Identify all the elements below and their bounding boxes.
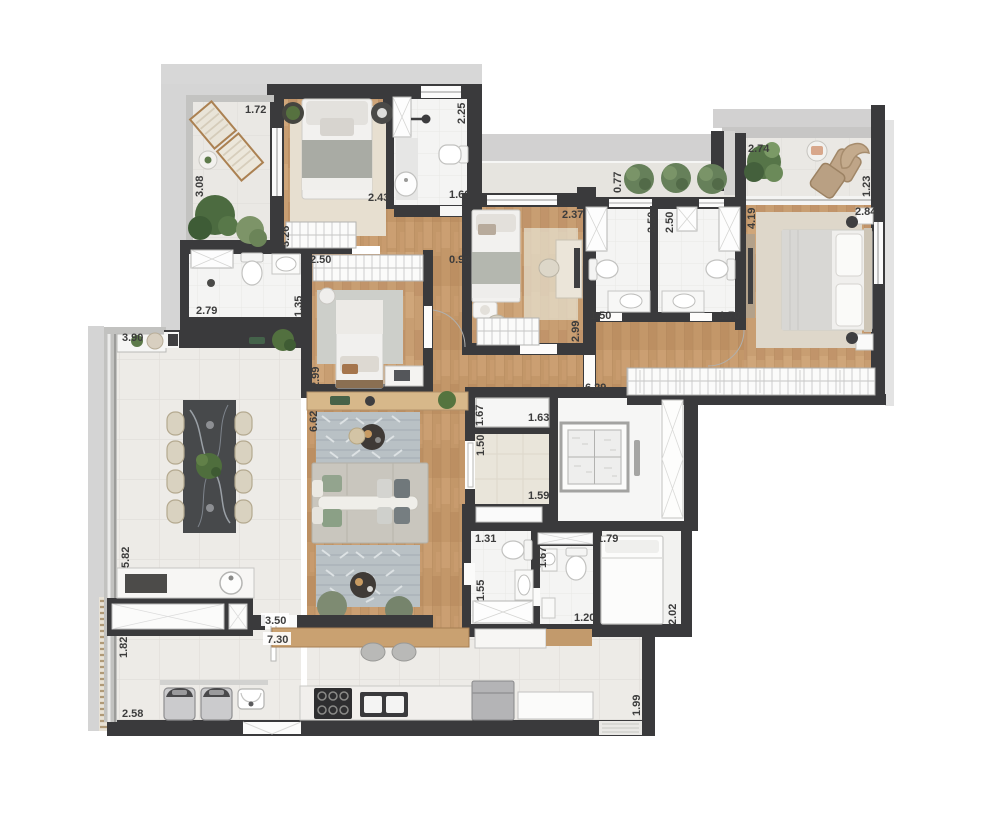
svg-text:2.43: 2.43 — [368, 192, 389, 204]
svg-text:1.55: 1.55 — [475, 580, 487, 601]
svg-text:2.58: 2.58 — [122, 708, 143, 720]
svg-text:1.72: 1.72 — [245, 104, 266, 116]
svg-text:0.90: 0.90 — [449, 254, 470, 266]
svg-text:3.50: 3.50 — [265, 615, 286, 627]
svg-text:1.50: 1.50 — [590, 310, 611, 322]
svg-text:3.08: 3.08 — [194, 176, 206, 197]
svg-text:1.20: 1.20 — [574, 612, 595, 624]
svg-text:1.60: 1.60 — [449, 189, 470, 201]
svg-text:1.35: 1.35 — [293, 296, 305, 317]
svg-text:2.02: 2.02 — [667, 604, 679, 625]
svg-text:2.25: 2.25 — [456, 103, 468, 124]
svg-text:6.62: 6.62 — [308, 411, 320, 432]
svg-text:2.50: 2.50 — [664, 212, 676, 233]
svg-text:2.74: 2.74 — [748, 143, 770, 155]
svg-text:2.99: 2.99 — [310, 367, 322, 388]
svg-text:1.82: 1.82 — [118, 637, 130, 658]
svg-text:1.59: 1.59 — [528, 490, 549, 502]
svg-text:1.67: 1.67 — [537, 547, 549, 568]
svg-text:1.63: 1.63 — [528, 412, 549, 424]
svg-text:1.50: 1.50 — [475, 435, 487, 456]
svg-text:0.77: 0.77 — [612, 172, 624, 193]
svg-text:1.23: 1.23 — [861, 176, 873, 197]
svg-text:1.67: 1.67 — [474, 405, 486, 426]
svg-text:1.99: 1.99 — [631, 695, 643, 716]
svg-text:3.90: 3.90 — [122, 332, 143, 344]
svg-text:6.29: 6.29 — [585, 382, 606, 394]
svg-text:5.82: 5.82 — [120, 547, 132, 568]
svg-text:2.37: 2.37 — [562, 209, 583, 221]
svg-text:2.84: 2.84 — [855, 206, 877, 218]
svg-text:1.70: 1.70 — [719, 310, 740, 322]
svg-text:2.50: 2.50 — [646, 212, 658, 233]
svg-text:2.99: 2.99 — [570, 321, 582, 342]
svg-text:3.26: 3.26 — [280, 226, 292, 247]
svg-text:1.31: 1.31 — [475, 533, 496, 545]
svg-text:7.30: 7.30 — [267, 634, 288, 646]
svg-text:4.19: 4.19 — [746, 208, 758, 229]
svg-text:2.79: 2.79 — [196, 305, 217, 317]
svg-text:1.79: 1.79 — [597, 533, 618, 545]
svg-text:2.50: 2.50 — [310, 254, 331, 266]
